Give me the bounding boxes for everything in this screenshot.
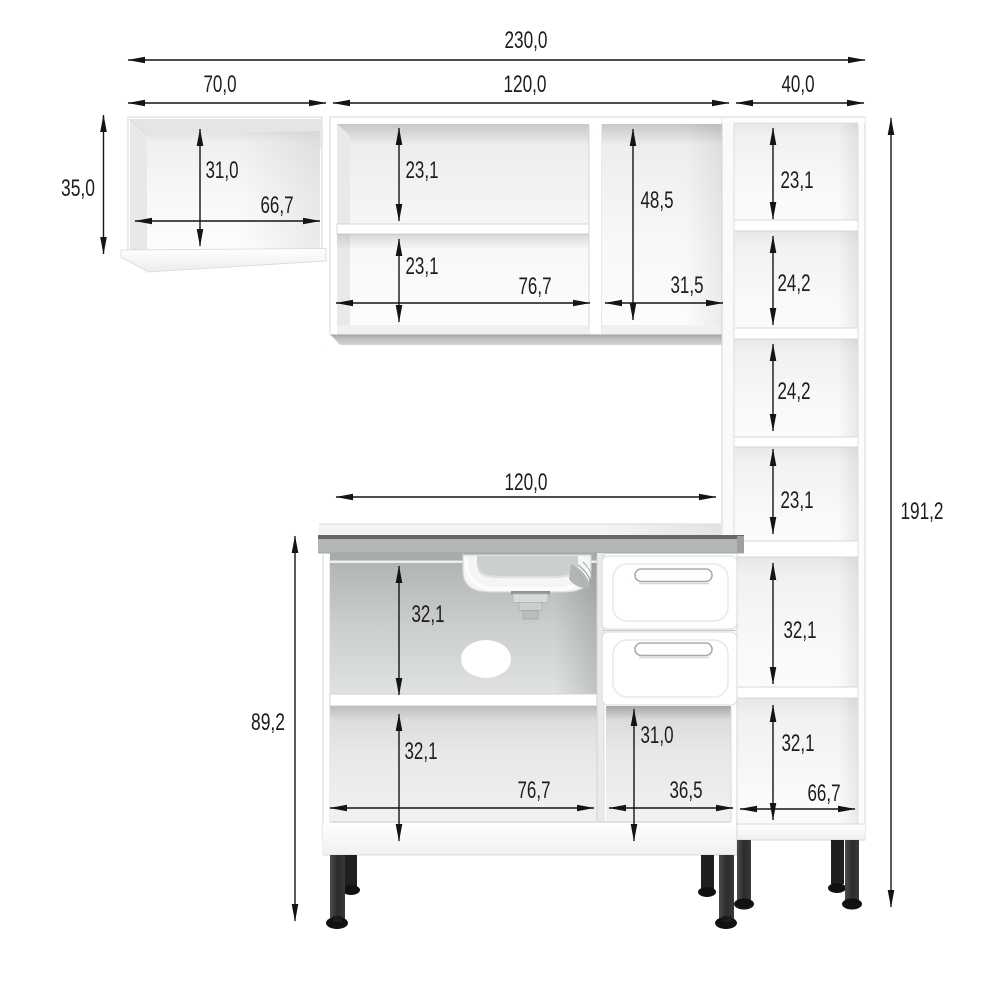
svg-text:191,2: 191,2 [901, 498, 944, 525]
svg-text:32,1: 32,1 [412, 601, 445, 628]
svg-text:40,0: 40,0 [782, 71, 815, 98]
svg-text:48,5: 48,5 [641, 187, 674, 214]
svg-text:70,0: 70,0 [204, 71, 237, 98]
svg-text:24,2: 24,2 [778, 378, 811, 405]
svg-text:36,5: 36,5 [670, 777, 703, 804]
svg-text:32,1: 32,1 [784, 617, 817, 644]
svg-text:76,7: 76,7 [519, 273, 552, 300]
svg-text:31,0: 31,0 [206, 157, 239, 184]
svg-text:23,1: 23,1 [406, 157, 439, 184]
svg-text:76,7: 76,7 [518, 777, 551, 804]
svg-text:23,1: 23,1 [781, 487, 814, 514]
svg-text:23,1: 23,1 [781, 167, 814, 194]
svg-text:24,2: 24,2 [778, 270, 811, 297]
svg-text:31,0: 31,0 [641, 722, 674, 749]
svg-text:120,0: 120,0 [505, 469, 548, 496]
svg-text:32,1: 32,1 [782, 730, 815, 757]
svg-text:66,7: 66,7 [261, 192, 294, 219]
svg-text:31,5: 31,5 [671, 272, 704, 299]
svg-text:35,0: 35,0 [61, 175, 95, 202]
svg-text:23,1: 23,1 [406, 253, 439, 280]
svg-text:120,0: 120,0 [504, 71, 547, 98]
svg-text:66,7: 66,7 [808, 780, 841, 807]
svg-text:32,1: 32,1 [405, 738, 438, 765]
svg-text:230,0: 230,0 [505, 27, 548, 54]
svg-text:89,2: 89,2 [251, 709, 285, 736]
